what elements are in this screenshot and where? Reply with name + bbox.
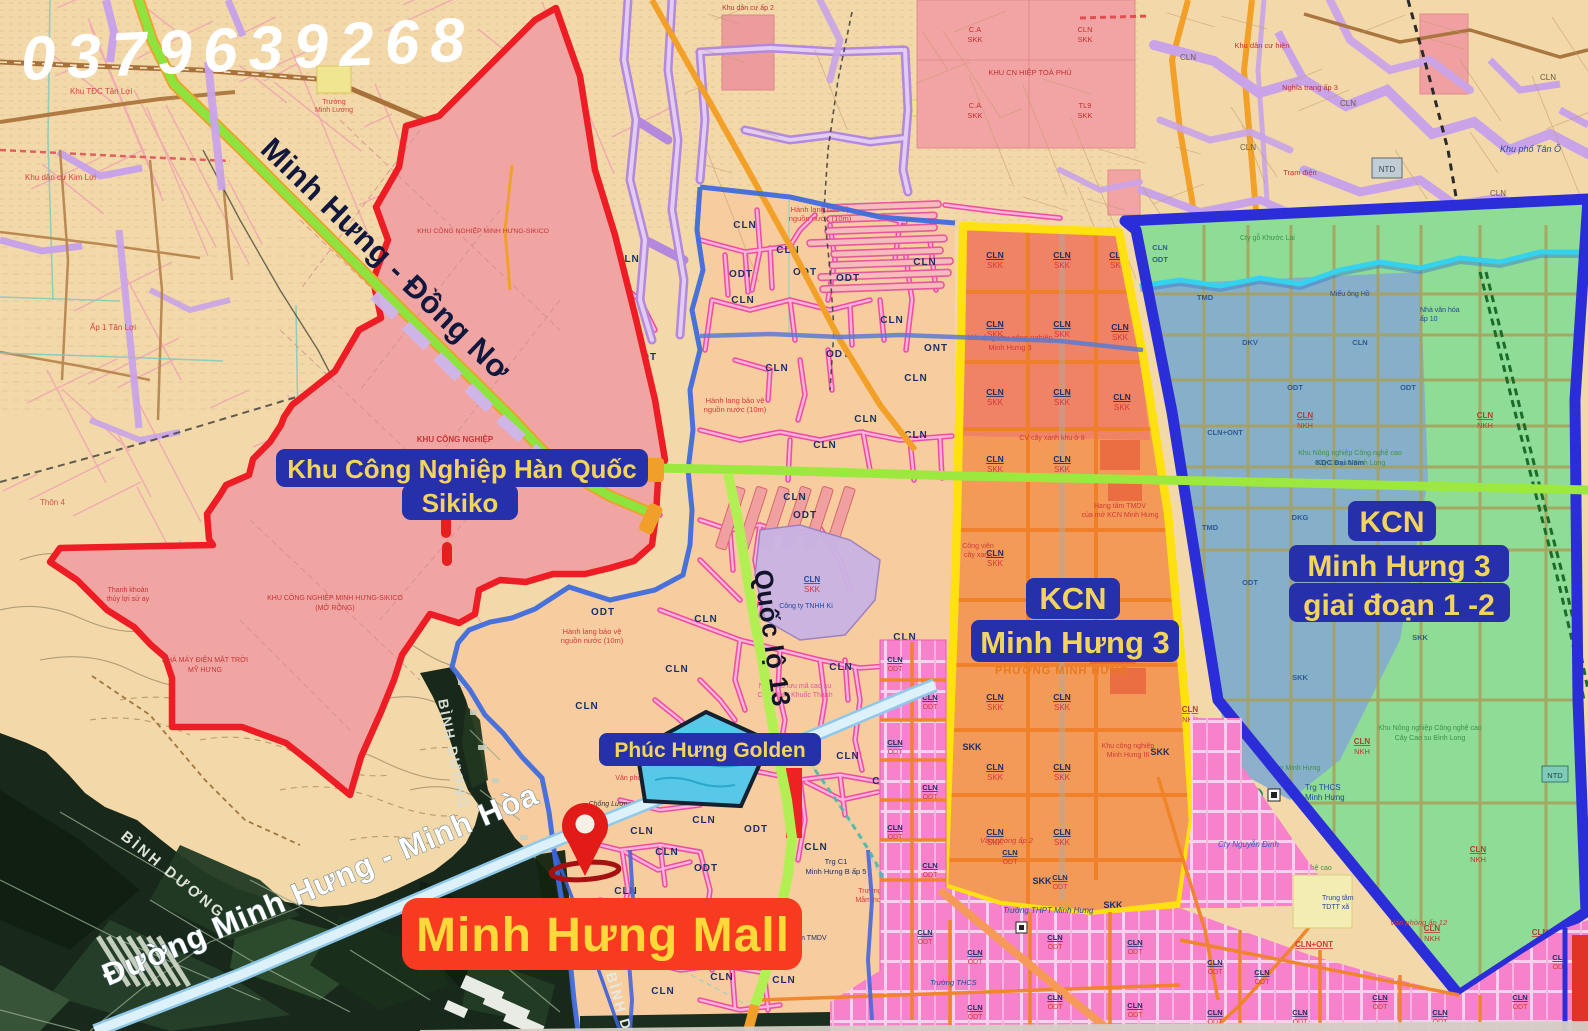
svg-text:CLN: CLN	[1053, 762, 1070, 772]
svg-text:SKK: SKK	[1054, 261, 1071, 270]
svg-text:SKK: SKK	[1054, 465, 1071, 474]
svg-text:Nghĩa trang ấp 3: Nghĩa trang ấp 3	[1282, 83, 1338, 92]
svg-text:CLN: CLN	[887, 655, 902, 664]
svg-text:ODT: ODT	[1373, 1004, 1389, 1011]
svg-text:Ấp 1 Tân Lợi: Ấp 1 Tân Lợi	[90, 322, 136, 332]
svg-text:CLN: CLN	[1354, 737, 1371, 746]
svg-text:Minh Hưng III: Minh Hưng III	[1107, 752, 1149, 759]
svg-text:Thanh khoản: Thanh khoản	[108, 587, 149, 594]
svg-text:SKK: SKK	[987, 773, 1004, 782]
svg-text:ODT: ODT	[923, 872, 939, 879]
svg-text:ODT: ODT	[836, 273, 860, 284]
svg-text:CLN: CLN	[710, 972, 734, 983]
svg-text:ODT: ODT	[1152, 255, 1168, 264]
svg-text:nguồn nước (10m): nguồn nước (10m)	[789, 214, 852, 223]
svg-text:ODT: ODT	[1053, 884, 1069, 891]
svg-text:Trạm điện: Trạm điện	[1283, 168, 1316, 177]
svg-text:KHU CÔNG NGHIỆP MINH HƯNG-SIKI: KHU CÔNG NGHIỆP MINH HƯNG-SIKICO	[267, 593, 403, 602]
svg-text:KHU CÔNG NGHIỆP MINH HƯNG-SIKI: KHU CÔNG NGHIỆP MINH HƯNG-SIKICO	[417, 226, 549, 235]
svg-text:Minh Hưng Mall: Minh Hưng Mall	[416, 909, 790, 962]
svg-text:SKK: SKK	[1054, 703, 1071, 712]
svg-text:CLN: CLN	[1292, 1008, 1307, 1017]
svg-text:CLN: CLN	[967, 1003, 982, 1012]
svg-text:Phúc Hưng Golden: Phúc Hưng Golden	[614, 739, 805, 762]
svg-text:CLN: CLN	[1372, 993, 1387, 1002]
svg-text:ODT: ODT	[888, 834, 904, 841]
svg-text:CLN: CLN	[1432, 1008, 1447, 1017]
svg-text:CLN: CLN	[1512, 993, 1527, 1002]
svg-text:Trg THCS: Trg THCS	[1305, 783, 1341, 792]
svg-text:Khu dân cư hiện: Khu dân cư hiện	[1234, 41, 1289, 50]
svg-text:Trường THPT Minh Hưng: Trường THPT Minh Hưng	[1003, 906, 1094, 915]
svg-text:Khu Nông nghiệp Công nghệ cao: Khu Nông nghiệp Công nghệ cao	[1298, 450, 1402, 457]
svg-text:ODT: ODT	[694, 863, 718, 874]
svg-text:của mở KCN Minh Hưng: của mở KCN Minh Hưng	[1082, 511, 1159, 519]
svg-text:CLN: CLN	[1002, 848, 1017, 857]
svg-text:CLN: CLN	[1047, 993, 1062, 1002]
svg-text:C.A: C.A	[969, 101, 982, 110]
svg-text:CLN: CLN	[887, 823, 902, 832]
svg-text:SKK: SKK	[1032, 876, 1052, 886]
svg-text:TMD: TMD	[1197, 293, 1214, 302]
svg-text:CLN: CLN	[1152, 243, 1167, 252]
svg-text:ODT: ODT	[923, 704, 939, 711]
svg-text:Cty gỗ Khước Lai: Cty gỗ Khước Lai	[1240, 233, 1295, 242]
svg-text:CLN: CLN	[665, 664, 689, 675]
svg-text:Văn phòng ấp 2: Văn phòng ấp 2	[980, 836, 1034, 845]
svg-text:CLN: CLN	[1254, 968, 1269, 977]
svg-text:MỸ HƯNG: MỸ HƯNG	[188, 665, 222, 674]
svg-text:CLN: CLN	[692, 815, 716, 826]
svg-text:CLN: CLN	[986, 692, 1003, 702]
svg-text:Minh Hưng 3: Minh Hưng 3	[1307, 550, 1490, 583]
svg-text:NKH: NKH	[1424, 934, 1440, 943]
svg-text:Khu dân cư Kim Lợi: Khu dân cư Kim Lợi	[25, 173, 96, 182]
svg-text:Văn phòng ấp 12: Văn phòng ấp 12	[1390, 918, 1448, 927]
svg-text:CLN: CLN	[986, 319, 1003, 329]
svg-text:ODT: ODT	[1048, 1004, 1064, 1011]
svg-text:CLN: CLN	[986, 762, 1003, 772]
svg-text:CLN: CLN	[1053, 454, 1070, 464]
svg-text:CLN: CLN	[731, 295, 755, 306]
svg-text:CLN: CLN	[1340, 99, 1356, 108]
svg-text:Khu Nông nghiệp Công nghệ cao: Khu Nông nghiệp Công nghệ cao	[1378, 725, 1482, 732]
svg-text:ODT: ODT	[1003, 859, 1019, 866]
svg-text:ODT: ODT	[1128, 1012, 1144, 1019]
svg-text:KCN: KCN	[1039, 581, 1106, 616]
svg-text:SKK: SKK	[1150, 747, 1170, 757]
svg-text:Khu Công Nghiệp Hàn Quốc: Khu Công Nghiệp Hàn Quốc	[287, 454, 637, 484]
svg-text:KHU CÔNG NGHIỆP: KHU CÔNG NGHIỆP	[417, 435, 494, 444]
svg-text:NKH: NKH	[1477, 421, 1493, 430]
svg-text:Sikiko: Sikiko	[422, 488, 499, 518]
svg-text:ODT: ODT	[923, 794, 939, 801]
svg-text:CLN: CLN	[986, 454, 1003, 464]
svg-text:C.A: C.A	[969, 25, 982, 34]
svg-text:CLN: CLN	[1077, 25, 1092, 34]
svg-text:ODT: ODT	[729, 269, 753, 280]
svg-text:TDTT xã: TDTT xã	[1322, 904, 1349, 911]
svg-text:CLN: CLN	[967, 948, 982, 957]
svg-text:Khu công nghiệp: Khu công nghiệp	[1102, 743, 1155, 750]
svg-text:Miếu ông Hồ: Miếu ông Hồ	[1330, 289, 1370, 298]
svg-text:CLN: CLN	[913, 257, 937, 268]
svg-text:CLN: CLN	[917, 928, 932, 937]
svg-text:CLN+ONT: CLN+ONT	[1295, 940, 1333, 949]
svg-text:SKK: SKK	[1054, 838, 1071, 847]
svg-text:CLN+ONT: CLN+ONT	[1207, 428, 1243, 437]
svg-text:SKK: SKK	[1054, 330, 1071, 339]
svg-text:CLN: CLN	[1207, 958, 1222, 967]
svg-text:ODT: ODT	[968, 1014, 984, 1021]
svg-text:SKK: SKK	[1077, 35, 1092, 44]
svg-text:CLN: CLN	[880, 315, 904, 326]
svg-text:CLN: CLN	[1297, 411, 1314, 420]
svg-text:CLN: CLN	[829, 662, 853, 673]
svg-text:CLN: CLN	[904, 373, 928, 384]
svg-text:CLN: CLN	[1180, 53, 1196, 62]
svg-text:cây xanh: cây xanh	[964, 552, 992, 559]
svg-text:ODT: ODT	[968, 959, 984, 966]
svg-text:SKK: SKK	[967, 111, 982, 120]
svg-text:ODT: ODT	[918, 939, 934, 946]
svg-text:DKG: DKG	[1292, 513, 1309, 522]
svg-text:CLN: CLN	[804, 575, 821, 584]
svg-text:CLN: CLN	[694, 614, 718, 625]
svg-text:Hành lang bảo vệ: Hành lang bảo vệ	[706, 396, 765, 405]
svg-text:SKK: SKK	[1292, 673, 1308, 682]
svg-text:Trường THCS: Trường THCS	[930, 978, 977, 987]
svg-text:ODT: ODT	[1208, 969, 1224, 976]
svg-text:CLN: CLN	[986, 250, 1003, 260]
svg-text:CLN: CLN	[1240, 143, 1256, 152]
svg-text:ấp 10: ấp 10	[1420, 314, 1438, 323]
svg-text:SKK: SKK	[987, 398, 1004, 407]
svg-text:Minh Lương: Minh Lương	[315, 107, 353, 114]
svg-text:ODT: ODT	[744, 824, 768, 835]
svg-text:NHÀ MÁY ĐIỆN MẶT TRỜI: NHÀ MÁY ĐIỆN MẶT TRỜI	[162, 655, 248, 664]
svg-text:SKK: SKK	[1114, 403, 1131, 412]
svg-text:NTD: NTD	[1547, 771, 1563, 780]
svg-text:ODT: ODT	[1513, 1004, 1529, 1011]
svg-text:Trg C1: Trg C1	[825, 857, 848, 866]
svg-text:CLN: CLN	[1053, 387, 1070, 397]
svg-text:KDC Đại Nam: KDC Đại Nam	[1316, 458, 1365, 467]
svg-text:KHU CN HIỆP TOÀ PHÚ: KHU CN HIỆP TOÀ PHÚ	[988, 68, 1071, 77]
svg-text:ODT: ODT	[1400, 383, 1416, 392]
svg-text:ODT: ODT	[793, 510, 817, 521]
svg-text:SKK: SKK	[1412, 633, 1428, 642]
svg-text:TL9: TL9	[1079, 101, 1092, 110]
svg-text:Cây Cao su Bình Long: Cây Cao su Bình Long	[1395, 735, 1466, 742]
svg-text:CLN: CLN	[651, 986, 675, 997]
svg-text:PHƯỜNG MINH HƯNG: PHƯỜNG MINH HƯNG	[995, 664, 1129, 677]
svg-text:SKK: SKK	[1054, 773, 1071, 782]
svg-text:CLN: CLN	[986, 387, 1003, 397]
svg-text:nguồn nước (10m): nguồn nước (10m)	[561, 636, 624, 645]
svg-text:KCN: KCN	[1360, 506, 1425, 539]
svg-text:ODT: ODT	[1242, 578, 1258, 587]
svg-text:TMD: TMD	[1202, 523, 1219, 532]
svg-text:Minh Hưng: Minh Hưng	[1305, 793, 1345, 802]
svg-text:CLN: CLN	[1053, 827, 1070, 837]
svg-text:nguồn nước (10m): nguồn nước (10m)	[704, 405, 767, 414]
svg-text:Minh Hưng B ấp 5: Minh Hưng B ấp 5	[806, 867, 867, 876]
svg-text:CLN: CLN	[1052, 873, 1067, 882]
svg-text:ONT: ONT	[924, 343, 948, 354]
svg-text:CLN: CLN	[765, 363, 789, 374]
svg-text:NKH: NKH	[1354, 747, 1370, 756]
svg-text:NKH: NKH	[1470, 855, 1486, 864]
svg-text:Công ty TNHH Ki: Công ty TNHH Ki	[779, 603, 833, 610]
svg-text:SKK: SKK	[804, 585, 821, 594]
svg-text:NKH: NKH	[1297, 421, 1313, 430]
svg-text:Minh Hưng 3: Minh Hưng 3	[988, 343, 1031, 352]
svg-text:SKK: SKK	[987, 703, 1004, 712]
svg-text:CLN: CLN	[922, 783, 937, 792]
svg-text:DKV: DKV	[1242, 338, 1258, 347]
svg-text:CLN: CLN	[783, 492, 807, 503]
svg-text:SKK: SKK	[1054, 398, 1071, 407]
svg-text:SKK: SKK	[987, 559, 1004, 568]
svg-text:Cty Nguyễn Đình: Cty Nguyễn Đình	[1218, 840, 1279, 849]
svg-text:thủy lợi sử ay: thủy lợi sử ay	[107, 595, 150, 603]
svg-text:ODT: ODT	[1128, 949, 1144, 956]
svg-text:CLN: CLN	[1113, 392, 1130, 402]
svg-text:ODT: ODT	[591, 607, 615, 618]
svg-text:CLN: CLN	[1477, 411, 1494, 420]
svg-text:CLN: CLN	[922, 861, 937, 870]
svg-text:ODT: ODT	[1048, 944, 1064, 951]
svg-text:CLN: CLN	[1470, 845, 1487, 854]
svg-text:CLN: CLN	[1540, 73, 1556, 82]
svg-text:CLN: CLN	[1490, 189, 1506, 198]
svg-text:CLN: CLN	[655, 847, 679, 858]
svg-text:CLN: CLN	[1053, 250, 1070, 260]
svg-text:ODT: ODT	[1255, 979, 1271, 986]
svg-text:CLN: CLN	[630, 826, 654, 837]
svg-text:Minh Hưng 3: Minh Hưng 3	[980, 625, 1169, 660]
svg-text:CLN: CLN	[1127, 938, 1142, 947]
svg-text:Thôn 4: Thôn 4	[40, 498, 65, 507]
svg-text:CLN: CLN	[1111, 322, 1128, 332]
svg-text:CLN: CLN	[854, 414, 878, 425]
svg-text:SKK: SKK	[1112, 333, 1129, 342]
svg-text:SKK: SKK	[962, 742, 982, 752]
svg-text:CLN: CLN	[836, 751, 860, 762]
svg-text:Trung tâm: Trung tâm	[1322, 895, 1354, 902]
svg-text:SKK: SKK	[987, 261, 1004, 270]
svg-text:CLN: CLN	[813, 440, 837, 451]
svg-text:Khu phố Tân Ô: Khu phố Tân Ô	[1500, 144, 1561, 154]
svg-text:ODT: ODT	[1287, 383, 1303, 392]
svg-text:SKK: SKK	[967, 35, 982, 44]
svg-text:Hành lang bảo vệ: Hành lang bảo vệ	[563, 627, 622, 636]
svg-text:CLN: CLN	[1053, 692, 1070, 702]
svg-text:CLN: CLN	[887, 738, 902, 747]
svg-text:CLN: CLN	[575, 701, 599, 712]
svg-text:NTD: NTD	[1379, 165, 1396, 174]
svg-text:Công viên: Công viên	[962, 543, 994, 550]
svg-text:CLN: CLN	[1047, 933, 1062, 942]
svg-text:CLN: CLN	[804, 842, 828, 853]
svg-text:CV cây xanh khu ở 8: CV cây xanh khu ở 8	[1019, 434, 1084, 442]
svg-text:Nhà văn hóa: Nhà văn hóa	[1420, 307, 1460, 314]
svg-text:CLN: CLN	[1352, 338, 1367, 347]
svg-text:CLN: CLN	[1127, 1001, 1142, 1010]
svg-text:ODT: ODT	[888, 749, 904, 756]
svg-text:(MỞ RỘNG): (MỞ RỘNG)	[315, 603, 354, 612]
svg-text:Khu dân cư ấp 2: Khu dân cư ấp 2	[722, 3, 774, 12]
svg-text:CLN: CLN	[1053, 319, 1070, 329]
svg-text:ODT: ODT	[888, 666, 904, 673]
svg-text:CLN: CLN	[1207, 1008, 1222, 1017]
svg-text:Trường: Trường	[322, 99, 346, 106]
svg-text:giai đoạn 1 -2: giai đoạn 1 -2	[1303, 589, 1495, 622]
svg-text:SKK: SKK	[1077, 111, 1092, 120]
svg-text:CLN: CLN	[772, 975, 796, 986]
svg-text:Hạng tâm TMDV: Hạng tâm TMDV	[1094, 503, 1146, 510]
